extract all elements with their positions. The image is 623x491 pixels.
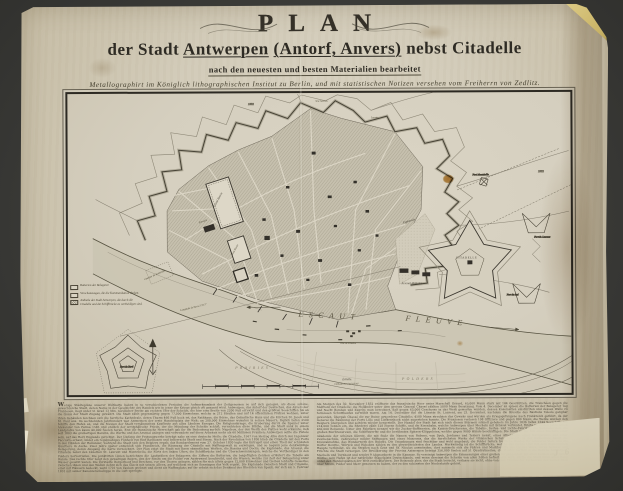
fort-du-sud: Fort du Sud	[506, 284, 541, 304]
polders-label: POLDERS	[401, 377, 435, 381]
map-drawing-area: Esplanade Arsenal Militaire	[65, 90, 573, 397]
scanned-map-page: PLAN der Stadt Antwerpen (Antorf, Anvers…	[0, 0, 623, 491]
fort-montebello: Fort Montebello	[471, 173, 489, 186]
map-sheet-paper: PLAN der Stadt Antwerpen (Antorf, Anvers…	[18, 4, 610, 483]
echelle-label: Échelle.	[341, 376, 352, 381]
map-title: PLAN	[58, 9, 571, 39]
materials-note: nach den neuesten und besten Materialien…	[209, 64, 421, 77]
lunette-label: Lunette	[370, 116, 379, 119]
fort-du-nord: Fort du Nord	[96, 329, 160, 393]
siege-year-label-north: 1832	[248, 102, 254, 106]
fort-st-laurent: Fort St. Laurent	[522, 213, 550, 239]
fort-st-laurent-label: Fort St. Laurent	[533, 236, 550, 239]
citadel: CITADELLE	[419, 211, 521, 306]
battery-symbol	[70, 285, 78, 290]
fort-du-nord-label: Fort du Nord	[119, 365, 134, 368]
paper-chip	[16, 430, 28, 457]
legend-item: Antheile der Stadt Antwerpen, die durch …	[70, 299, 144, 306]
paper-chip	[21, 398, 29, 413]
city-share-symbol	[70, 300, 78, 305]
tete-de-flandre-label: Tête de Flandre	[340, 342, 357, 345]
arsenal-label: Arsenal Militaire	[401, 281, 423, 285]
subtitle-suffix: nebst Citadelle	[406, 38, 522, 58]
map-frame: Esplanade Arsenal Militaire	[62, 87, 576, 400]
legend-item: Verschanzungen, die die Kommunikation de…	[70, 291, 144, 297]
title-block: PLAN der Stadt Antwerpen (Antorf, Anvers…	[58, 9, 571, 89]
fort-du-sud-label: Fort du Sud	[506, 293, 520, 296]
printer-imprint: Gedruckt und zu haben im lithographische…	[58, 481, 568, 487]
map-subtitle: der Stadt Antwerpen (Antorf, Anvers) neb…	[58, 38, 571, 60]
statistical-notes: Wenige Städtepläne unserer Weltkarte hab…	[58, 402, 568, 474]
latitude-label: Latitude Nord 51°13′16″	[333, 383, 359, 386]
subtitle-altnames: (Antorf, Anvers)	[273, 39, 401, 59]
siege-year-label: 1832	[538, 169, 544, 173]
corner-tape-repair	[565, 3, 609, 43]
legend-label: Batterien der Belagerer.	[80, 284, 109, 290]
notes-column-left: Wenige Städtepläne unserer Weltkarte hab…	[58, 403, 309, 474]
subtitle-row3: nach den neuesten und besten Materialien…	[58, 58, 571, 78]
section-label: 5me Section.	[315, 100, 328, 103]
subtitle-prefix: der Stadt	[107, 40, 179, 59]
citadelle-label: CITADELLE	[456, 255, 477, 259]
scale-bar: Échelle. Latitude Nord 51°13′16″	[203, 376, 360, 389]
cathedral	[264, 236, 269, 240]
subtitle-city: Antwerpen	[183, 39, 269, 58]
fort-montebello-label: Fort Montebello	[471, 173, 489, 176]
antwerp-map: Esplanade Arsenal Militaire	[67, 92, 571, 395]
prairies-label: PRAIRIES	[234, 366, 270, 370]
entrenchment-symbol	[70, 293, 78, 298]
north-arrow	[150, 339, 157, 374]
legend-item: Batterien der Belagerer.	[70, 284, 144, 290]
map-legend: Batterien der Belagerer. Verschanzungen,…	[70, 284, 144, 308]
legend-label: Antheile der Stadt Antwerpen, die durch …	[80, 299, 144, 306]
legend-label: Verschanzungen, die die Kommunikation de…	[80, 291, 139, 297]
